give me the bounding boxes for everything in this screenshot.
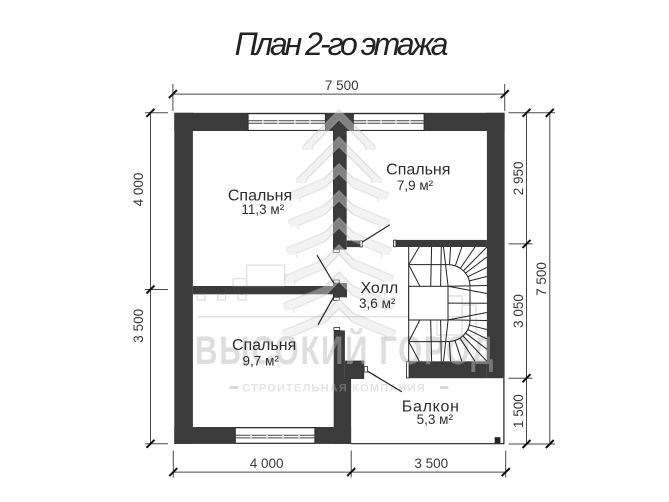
svg-text:Спальня: Спальня: [386, 162, 450, 179]
svg-text:Холл: Холл: [360, 280, 398, 297]
svg-text:Спальня: Спальня: [232, 337, 296, 354]
svg-text:3 050: 3 050: [511, 294, 526, 328]
svg-text:СТРОИТЕЛЬНАЯ КОМПАНИЯ: СТРОИТЕЛЬНАЯ КОМПАНИЯ: [242, 383, 426, 395]
svg-text:2 950: 2 950: [511, 162, 526, 196]
svg-text:7 500: 7 500: [534, 262, 549, 296]
svg-text:9,7 м²: 9,7 м²: [243, 354, 280, 369]
svg-text:7 500: 7 500: [325, 78, 359, 93]
svg-text:План 2-го этажа: План 2-го этажа: [235, 26, 448, 62]
svg-text:3,6 м²: 3,6 м²: [359, 296, 396, 311]
svg-text:5,3 м²: 5,3 м²: [417, 412, 454, 427]
svg-text:3 500: 3 500: [414, 456, 448, 471]
svg-text:4 000: 4 000: [131, 173, 146, 207]
svg-text:4 000: 4 000: [250, 456, 284, 471]
svg-text:7,9 м²: 7,9 м²: [397, 178, 434, 193]
svg-text:11,3 м²: 11,3 м²: [241, 202, 284, 217]
svg-text:3 500: 3 500: [131, 309, 146, 343]
svg-text:1 500: 1 500: [511, 394, 526, 428]
